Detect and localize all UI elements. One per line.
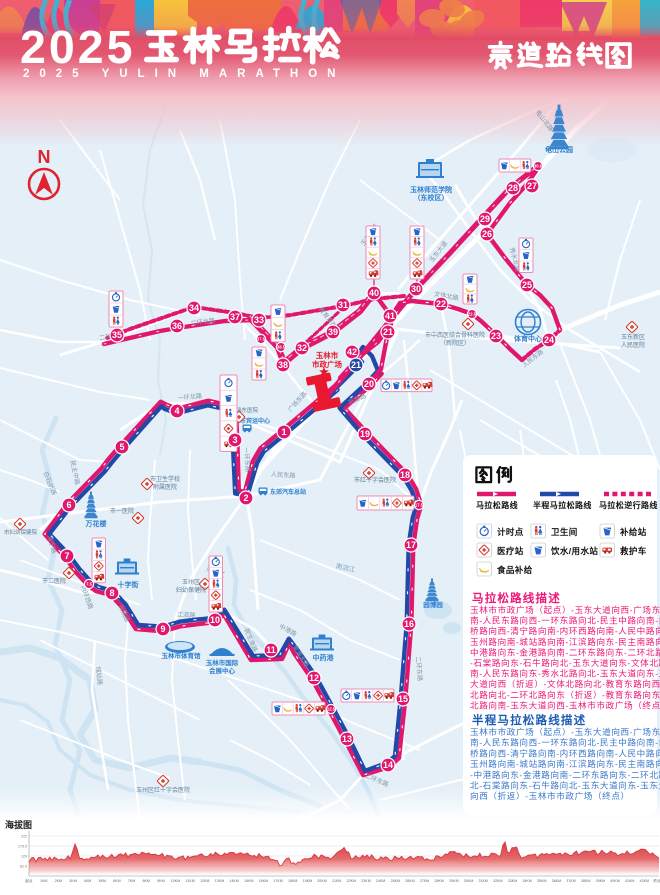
svg-text:37KM: 37KM [566,879,575,883]
svg-text:市妇幼保健院: 市妇幼保健院 [4,528,38,536]
svg-text:30.5: 30.5 [534,164,543,169]
svg-text:瑞东医院: 瑞东医院 [236,406,259,414]
svg-text:市一医院: 市一医院 [110,507,134,515]
svg-text:N: N [38,147,51,167]
svg-text:21KM: 21KM [332,879,341,883]
svg-text:37.5: 37.5 [257,337,266,342]
svg-text:玉州区: 玉州区 [182,579,200,586]
svg-text:20KM: 20KM [317,879,326,883]
svg-text:马拉松路线: 马拉松路线 [476,500,518,510]
svg-text:玉林市市政广场（起点）-玉东大道向西-广场东路向: 玉林市市政广场（起点）-玉东大道向西-广场东路向 [470,726,660,737]
svg-text:36KM: 36KM [552,879,561,883]
svg-text:11KM: 11KM [186,879,195,883]
svg-text:计时点: 计时点 [497,527,524,537]
svg-text:体育中心: 体育中心 [514,334,542,343]
svg-text:-中港路向东-金港路向南-二环东路向东-二环北路向: -中港路向东-金港路向南-二环东路向东-二环北路向 [470,769,660,780]
svg-text:23KM: 23KM [361,879,370,883]
svg-text:42: 42 [347,347,357,357]
svg-text:12KM: 12KM [200,879,209,883]
svg-text:4: 4 [174,406,179,416]
svg-text:33: 33 [254,315,264,325]
svg-text:向西（折返）-玉林市市政广场（终点）: 向西（折返）-玉林市市政广场（终点） [470,790,630,801]
svg-text:41KM: 41KM [625,879,634,883]
svg-text:22KM: 22KM [347,879,356,883]
svg-text:21: 21 [351,360,361,370]
svg-text:玉州路向南-城站路向南-江滨路向东-民主南路向南: 玉州路向南-城站路向南-江滨路向东-民主南路向南 [470,758,660,769]
svg-text:马拉松路线描述: 马拉松路线描述 [472,591,561,605]
svg-text:-石棠路向东-石牛路向北-玉东大道向东-文体北路向: -石棠路向东-石牛路向北-玉东大道向东-文体北路向 [470,657,660,668]
svg-text:19KM: 19KM [303,879,312,883]
svg-text:18: 18 [400,470,410,480]
svg-text:十字街: 十字街 [118,580,139,589]
svg-text:29KM: 29KM [449,879,458,883]
svg-text:桥路向西-清宁路向南-内环西路向南-人民中路向东-: 桥路向西-清宁路向南-内环西路向南-人民中路向东- [470,625,660,636]
svg-text:会展中心: 会展中心 [209,666,236,675]
svg-text:39: 39 [328,327,338,337]
svg-text:38.5: 38.5 [277,345,286,350]
svg-text:40KM: 40KM [610,879,619,883]
svg-text:82.5: 82.5 [20,865,27,869]
svg-text:终点: 终点 [653,878,660,883]
svg-text:市卫生学校: 市卫生学校 [150,475,180,483]
svg-text:半程马拉松路线: 半程马拉松路线 [533,500,592,510]
svg-text:38KM: 38KM [581,879,590,883]
svg-text:26: 26 [482,229,492,239]
svg-text:玉林师范学院: 玉林师范学院 [410,185,452,194]
svg-text:市二医院: 市二医院 [42,577,66,585]
svg-text:南-人民东路向西-一环东路向北-民主中路向南-白石: 南-人民东路向西-一环东路向北-民主中路向南-白石 [470,615,660,626]
svg-text:6KM: 6KM [113,879,120,883]
svg-text:玉林市: 玉林市 [316,350,339,360]
svg-text:17: 17 [406,540,416,550]
svg-text:36: 36 [172,321,182,331]
svg-text:31KM: 31KM [479,879,488,883]
svg-text:7KM: 7KM [128,879,135,883]
svg-text:35KM: 35KM [537,879,546,883]
svg-text:市政广场: 市政广场 [312,359,342,369]
svg-text:28: 28 [508,183,518,193]
svg-text:17.5: 17.5 [415,503,424,508]
svg-text:南-人民东路向西-一环东路向北-民主中路向南-白石: 南-人民东路向西-一环东路向北-民主中路向南-白石 [470,737,660,748]
svg-text:8KM: 8KM [143,879,150,883]
svg-text:玉林市市政广场（起点）-玉东大道向西-广场东路向: 玉林市市政广场（起点）-玉东大道向西-广场东路向 [470,604,660,615]
svg-text:江滨路: 江滨路 [177,611,197,620]
svg-text:2025 YULIN MARATHON: 2025 YULIN MARATHON [23,68,346,80]
svg-text:半程马拉松路线描述: 半程马拉松路线描述 [472,713,586,727]
svg-text:市中西医结合骨科医院: 市中西医结合骨科医院 [425,331,485,339]
svg-text:35: 35 [112,330,122,340]
svg-text:5KM: 5KM [99,879,106,883]
svg-text:12: 12 [309,673,319,683]
svg-text:15: 15 [398,694,408,704]
svg-text:南-人民东路向东-秀水北路向北-玉东大道向东-玉东: 南-人民东路向东-秀水北路向北-玉东大道向东-玉东 [470,668,660,679]
svg-text:3: 3 [232,435,237,445]
svg-text:园博园: 园博园 [423,600,443,609]
svg-text:6: 6 [66,500,71,510]
svg-text:救护车: 救护车 [620,546,647,556]
svg-text:40: 40 [369,288,379,298]
svg-text:14: 14 [383,760,393,770]
svg-text:3KM: 3KM [69,879,76,883]
svg-text:玉林市体育馆: 玉林市体育馆 [162,651,202,660]
svg-text:11: 11 [266,645,276,655]
svg-text:10: 10 [210,615,220,625]
svg-text:37: 37 [230,312,240,322]
svg-text:25: 25 [522,280,532,290]
svg-text:万花楼: 万花楼 [85,519,107,528]
svg-text:22: 22 [436,299,446,309]
svg-text:129: 129 [21,855,27,859]
svg-text:海拔图: 海拔图 [5,819,32,830]
svg-text:17KM: 17KM [273,879,282,883]
svg-text:222: 222 [21,835,27,839]
svg-text:北路向南-玉东大道向西-玉林市市政广场（终点）: 北路向南-玉东大道向西-玉林市市政广场（终点） [470,699,660,710]
svg-text:175.5: 175.5 [18,845,27,849]
svg-text:21: 21 [383,327,393,337]
svg-text:北-石棠路向东-石牛路向北-玉东大道向东-玉东大道: 北-石棠路向东-石牛路向北-玉东大道向东-玉东大道 [470,780,660,791]
svg-text:24KM: 24KM [376,879,385,883]
svg-text:7.5: 7.5 [86,582,92,587]
svg-text:4KM: 4KM [84,879,91,883]
svg-text:30: 30 [411,284,421,294]
svg-text:18KM: 18KM [288,879,297,883]
svg-text:13: 13 [342,734,352,744]
svg-text:31: 31 [338,300,348,310]
svg-text:玉州路向南-城站路向南-江滨路向东-民主南路向南-: 玉州路向南-城站路向南-江滨路向东-民主南路向南- [470,636,660,647]
svg-text:23: 23 [491,331,501,341]
svg-text:38: 38 [278,360,288,370]
svg-text:7: 7 [64,551,69,561]
svg-text:医疗站: 医疗站 [497,546,524,556]
svg-text:12.5: 12.5 [327,707,336,712]
svg-text:30KM: 30KM [464,879,473,883]
svg-text:玉东新区: 玉东新区 [621,333,645,341]
svg-text:33KM: 33KM [508,879,517,883]
svg-text:39KM: 39KM [596,879,605,883]
svg-text:1: 1 [281,427,286,437]
svg-text:32KM: 32KM [493,879,502,883]
svg-text:人民医院: 人民医院 [621,341,645,349]
svg-text:9KM: 9KM [157,879,164,883]
svg-text:（新院区）: （新院区） [440,339,470,347]
svg-text:14KM: 14KM [229,879,238,883]
svg-text:24: 24 [544,335,554,345]
svg-text:大道向西（折返）-文体北路向北-教育东路向西-二环: 大道向西（折返）-文体北路向北-教育东路向西-二环 [470,678,660,689]
svg-text:2KM: 2KM [55,879,62,883]
svg-text:附属医院: 附属医院 [153,483,177,491]
svg-text:20: 20 [364,379,374,389]
svg-text:玉林市国际: 玉林市国际 [206,658,239,667]
svg-text:卫生间: 卫生间 [551,527,578,537]
svg-text:（东校区）: （东校区） [414,193,449,202]
svg-text:市红十字会医院: 市红十字会医院 [354,476,396,484]
svg-text:9: 9 [160,624,165,634]
svg-text:中药港: 中药港 [313,653,335,662]
svg-text:饮水/用水站: 饮水/用水站 [550,546,598,556]
svg-text:起点: 起点 [25,878,33,883]
svg-text:26KM: 26KM [405,879,414,883]
svg-text:34KM: 34KM [522,879,531,883]
svg-text:16KM: 16KM [259,879,268,883]
svg-text:27KM: 27KM [420,879,429,883]
svg-text:16: 16 [404,619,414,629]
svg-text:1KM: 1KM [40,879,47,883]
svg-text:28KM: 28KM [435,879,444,883]
svg-text:2: 2 [243,493,248,503]
svg-text:东郊汽车总站: 东郊汽车总站 [270,488,306,496]
svg-text:32: 32 [297,343,307,353]
svg-text:龟山公园: 龟山公园 [545,145,573,154]
svg-text:5: 5 [119,442,124,452]
svg-text:2025: 2025 [20,21,135,73]
svg-text:补给站: 补给站 [619,527,647,537]
svg-text:19: 19 [360,429,370,439]
svg-text:食品补给: 食品补给 [497,565,533,575]
svg-text:妇幼保健院: 妇幼保健院 [176,586,206,594]
svg-text:22.5: 22.5 [468,312,477,317]
svg-text:桥路向西-清宁路向南-内环西路向南-人民中路向东-: 桥路向西-清宁路向南-内环西路向南-人民中路向东- [470,747,660,758]
svg-text:中港路向东-金港路向南-二环东路向东-二环北路向北: 中港路向东-金港路向南-二环东路向东-二环北路向北 [470,646,660,657]
svg-text:马拉松逆行路线: 马拉松逆行路线 [599,500,658,510]
svg-text:15KM: 15KM [244,879,253,883]
svg-text:42KM: 42KM [640,879,649,883]
svg-text:34: 34 [189,303,199,313]
svg-text:27: 27 [527,181,537,191]
svg-text:13KM: 13KM [215,879,224,883]
svg-text:10KM: 10KM [171,879,180,883]
svg-text:41: 41 [385,311,395,321]
svg-text:北路向北-二环北路向东（折返）-教育东路向东-文体: 北路向北-二环北路向东（折返）-教育东路向东-文体 [470,689,660,700]
svg-text:29: 29 [480,214,490,224]
svg-text:8: 8 [109,588,114,598]
svg-text:25KM: 25KM [391,879,400,883]
